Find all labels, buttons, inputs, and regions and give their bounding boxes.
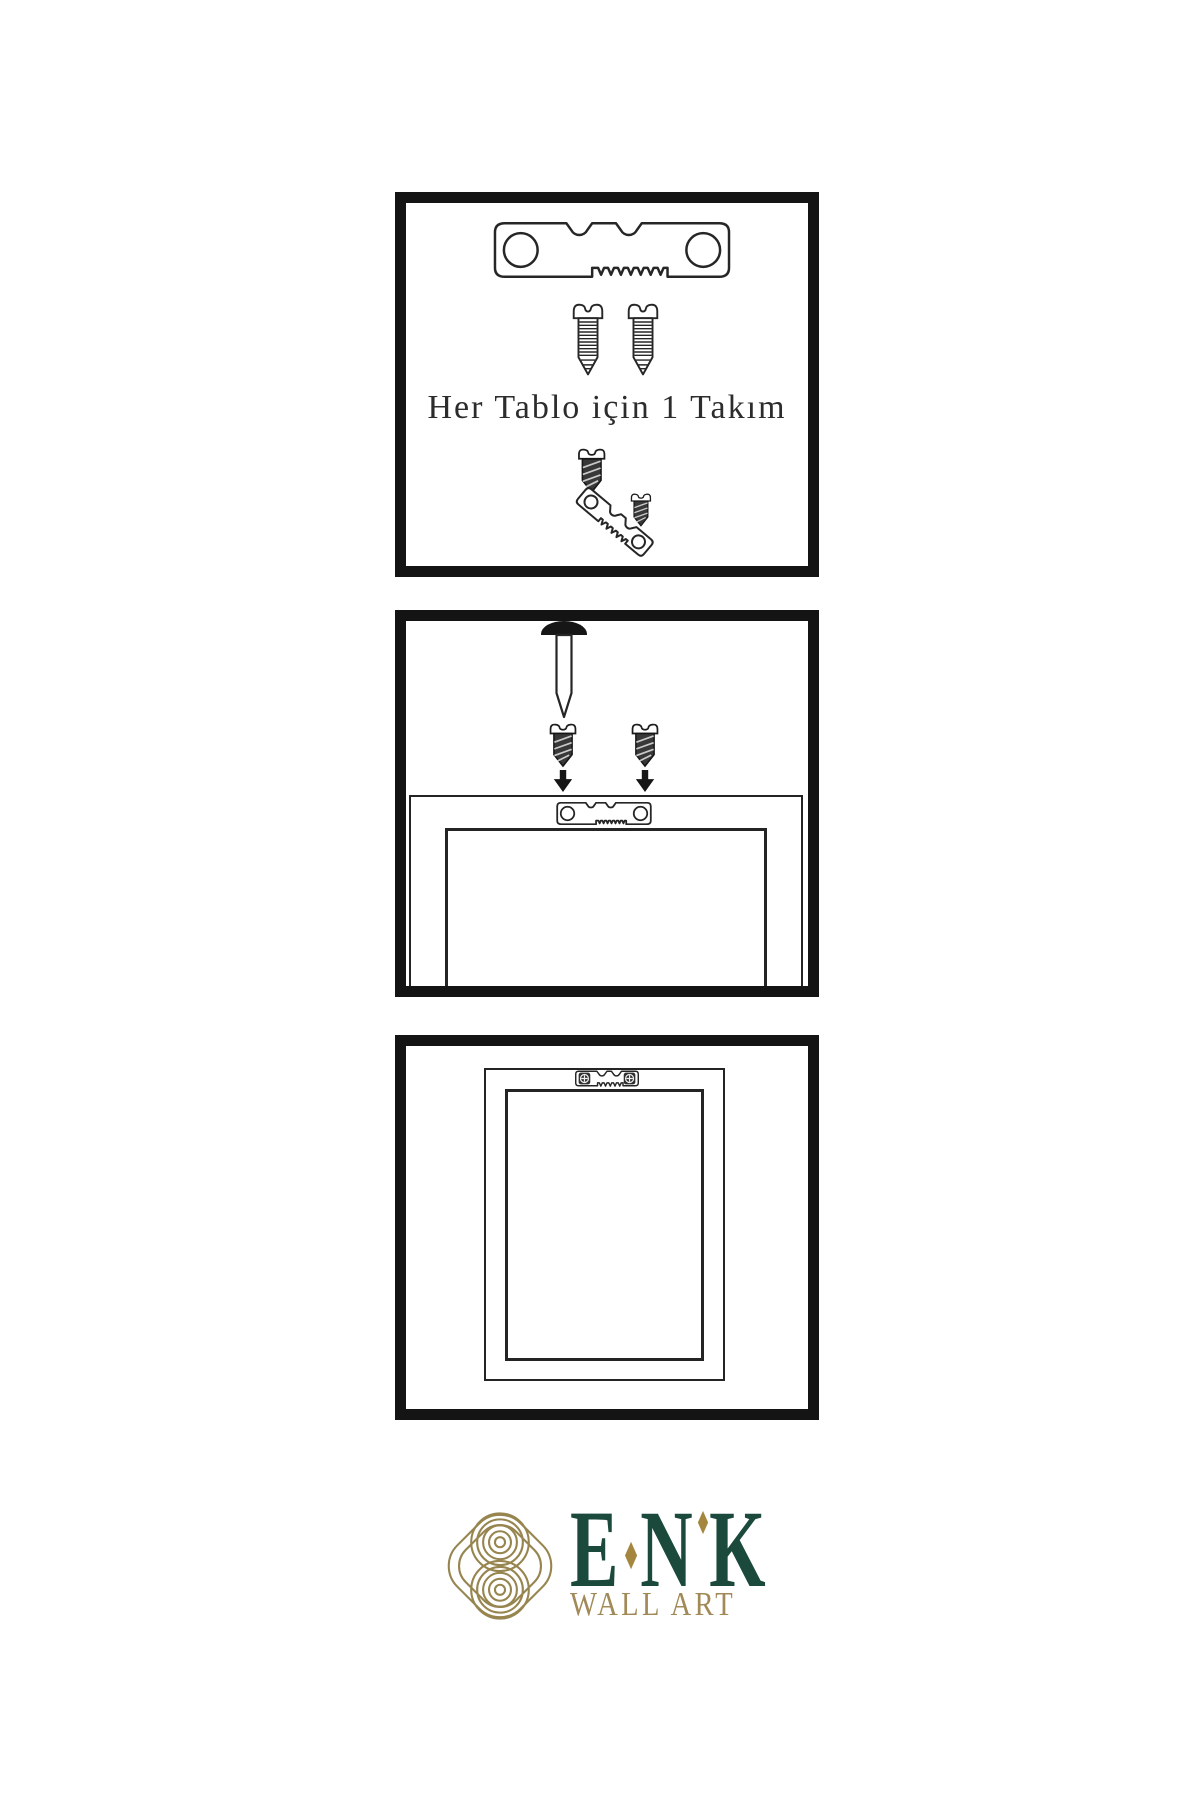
screw-icon — [570, 302, 606, 382]
arrow-down-icon — [635, 770, 655, 792]
frame-back-inner — [445, 828, 767, 997]
knot-logo-icon — [436, 1496, 564, 1636]
sawtooth-hanger-icon — [553, 802, 655, 825]
frame-back-inner — [505, 1089, 704, 1361]
diamond-icon — [698, 1511, 708, 1534]
screw-icon — [630, 723, 660, 769]
screw-head-icon — [624, 1073, 636, 1085]
panel-step-2 — [395, 610, 819, 997]
screw-icon — [548, 723, 578, 769]
instruction-sheet: Her Tablo için 1 Takım — [0, 0, 1200, 1800]
screw-icon — [579, 450, 604, 493]
brand-subtitle: WALL ART — [570, 1588, 736, 1622]
diamond-icon — [625, 1542, 637, 1570]
step1-caption: Her Tablo için 1 Takım — [406, 389, 808, 427]
screw-head-icon — [579, 1073, 591, 1085]
screw-icon — [625, 302, 661, 382]
arrow-down-icon — [553, 770, 573, 792]
hanger-assembly-icon — [553, 448, 665, 560]
panel-step-3 — [395, 1035, 819, 1420]
nail-icon — [540, 621, 588, 721]
screw-icon — [631, 494, 650, 526]
sawtooth-hanger-icon — [493, 221, 731, 279]
mounted-hanger-icon — [575, 1070, 639, 1087]
panel-step-1: Her Tablo için 1 Takım — [395, 192, 819, 577]
